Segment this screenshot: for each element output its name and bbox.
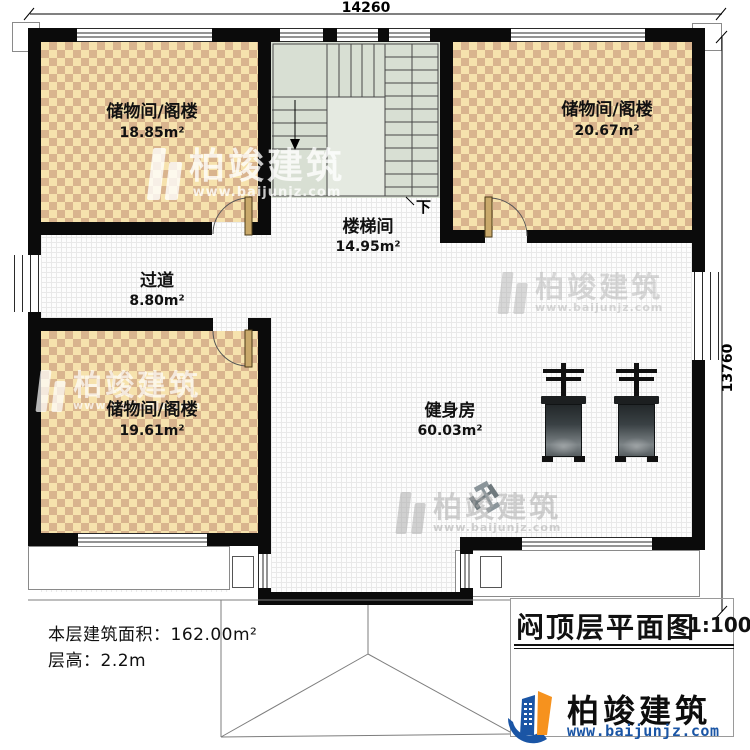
treadmill bbox=[613, 363, 660, 463]
dumbbells-icon bbox=[471, 483, 499, 511]
room-area-stairwell: 14.95m² bbox=[335, 240, 400, 255]
room-area-corridor: 8.80m² bbox=[129, 294, 184, 309]
floor-height-text: 层高：2.2m bbox=[48, 646, 146, 671]
stair-lines bbox=[272, 44, 438, 205]
title-underline bbox=[514, 644, 734, 649]
room-label-storage-tr: 储物间/阁楼 bbox=[561, 101, 652, 120]
room-area-gym: 60.03m² bbox=[417, 424, 482, 439]
dimension-right: 13760 bbox=[720, 344, 736, 393]
logo-tower-blue bbox=[520, 695, 535, 735]
room-label-corridor: 过道 bbox=[140, 272, 174, 291]
room-label-gym: 健身房 bbox=[425, 402, 476, 421]
floor-plan: 柏竣建筑www.baijunjz.com 柏竣建筑www.baijunjz.co… bbox=[0, 0, 750, 750]
building-swoosh-logo bbox=[501, 685, 563, 747]
floor-area-text: 本层建筑面积：162.00m² bbox=[48, 620, 257, 645]
brand-url: www.baijunjz.com bbox=[567, 722, 720, 740]
stair-down-label: 下 bbox=[416, 196, 431, 217]
logo-tower-orange bbox=[537, 691, 552, 735]
room-label-storage-bl: 储物间/阁楼 bbox=[106, 401, 197, 420]
drawing-scale: 1:100 bbox=[688, 613, 750, 637]
room-area-storage-tl: 18.85m² bbox=[119, 126, 184, 141]
room-area-storage-tr: 20.67m² bbox=[574, 124, 639, 139]
room-label-storage-tl: 储物间/阁楼 bbox=[106, 103, 197, 122]
room-label-stairwell: 楼梯间 bbox=[343, 218, 394, 237]
dimension-top: 14260 bbox=[342, 0, 391, 16]
stair-down-arrowhead bbox=[290, 139, 300, 150]
room-area-storage-bl: 19.61m² bbox=[119, 424, 184, 439]
drawing-title: 闷顶层平面图 bbox=[516, 606, 696, 646]
treadmill bbox=[540, 363, 587, 463]
